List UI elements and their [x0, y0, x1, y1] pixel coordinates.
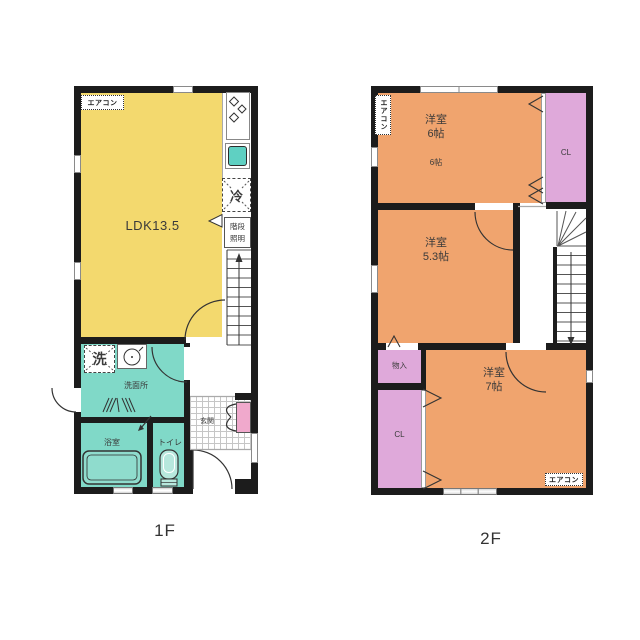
window-1f-left-2 — [74, 262, 81, 280]
wall-1f-bath-north — [74, 417, 188, 423]
wall-2f-closet-south — [546, 202, 593, 209]
room7-name: 洋室 — [449, 366, 539, 380]
washbasin-counter — [117, 344, 147, 369]
floor2-label: 2F — [466, 528, 516, 550]
door-gap-2f-7jo — [506, 343, 546, 350]
closet-bottom-label: CL — [378, 430, 421, 440]
washroom-label: 洗面所 — [120, 381, 152, 391]
kitchen-sink — [228, 146, 247, 166]
fridge-box: 冷 — [222, 178, 251, 212]
room-5-3jo — [378, 210, 513, 343]
window-2f-left-1 — [371, 147, 378, 167]
wall-2f-right — [586, 86, 593, 495]
wall-1f-corner-se — [235, 479, 258, 494]
room-bathroom — [81, 423, 147, 487]
room6-label: 洋室 6帖 — [391, 113, 481, 142]
toilet-label: トイレ — [155, 438, 185, 448]
window-1f-top — [173, 86, 193, 93]
wall-1f-entrance-north — [235, 393, 258, 400]
floor1-label: 1F — [140, 520, 190, 542]
washer-label: 洗 — [93, 349, 107, 369]
stair-light-box: 階段 照明 — [224, 217, 251, 248]
stairs-2f — [557, 211, 586, 341]
room-toilet — [153, 423, 188, 487]
room6-sub-label: 6帖 — [391, 158, 481, 168]
bathroom-label: 浴室 — [98, 438, 126, 448]
door-gap-1f-washroom — [184, 347, 190, 380]
backdoor-arc — [52, 388, 76, 412]
fridge-label: 冷 — [230, 186, 243, 205]
room53-size: 5.3帖 — [391, 250, 481, 264]
stairs-2f-handrail — [553, 247, 557, 345]
ldk-label: LDK13.5 — [120, 218, 185, 235]
aircon-label-1f-text: エアコン — [88, 98, 118, 108]
entrance-door-arc — [193, 450, 232, 489]
closet-top-label: CL — [546, 148, 586, 158]
wall-1f-ldk-south — [74, 337, 186, 344]
storage-label: 物入 — [378, 361, 421, 371]
kitchen-sink-unit — [225, 143, 250, 169]
room6-size: 6帖 — [391, 127, 481, 141]
stairs-1f-up-arrow — [236, 253, 243, 262]
floorplan-canvas: エアコン 冷 階段 照明 洗 LDK13.5 洗面所 浴室 トイレ 玄関 1F — [0, 0, 640, 640]
aircon-label-2f-bottom-text: エアコン — [549, 475, 579, 485]
window-1f-right — [251, 433, 258, 463]
window-2f-right — [586, 370, 593, 383]
aircon-label-1f: エアコン — [81, 95, 124, 110]
wall-2f-storage-south — [371, 383, 426, 390]
aircon-label-2f-top-text: エアコン — [378, 99, 388, 131]
door-gap-2f-53 — [475, 203, 513, 210]
washer-box: 洗 — [84, 345, 115, 373]
partition-7jo-closet — [421, 390, 426, 488]
entrance-label: 玄関 — [196, 417, 218, 426]
stair-light-line1: 階段 — [230, 221, 245, 233]
door-gap-1f-backdoor — [74, 388, 81, 412]
wall-1f-bath-toilet — [147, 423, 153, 487]
wall-2f-53-east — [513, 210, 520, 343]
wall-1f-porch-west — [186, 450, 193, 494]
room-ldk — [81, 93, 222, 337]
wall-2f-storage-east — [421, 350, 426, 383]
door-gap-1f-entrance — [193, 487, 235, 494]
wall-1f-left — [74, 86, 81, 494]
room7-size: 7帖 — [449, 380, 539, 394]
room53-label: 洋室 5.3帖 — [391, 236, 481, 265]
room53-name: 洋室 — [391, 236, 481, 250]
stair-light-line2: 照明 — [230, 233, 245, 245]
room7-label: 洋室 7帖 — [449, 366, 539, 395]
shoe-cabinet — [236, 402, 251, 433]
window-2f-left-2 — [371, 265, 378, 293]
stairs-1f — [227, 250, 251, 345]
window-1f-bath-vent — [113, 487, 133, 494]
room6-name: 洋室 — [391, 113, 481, 127]
aircon-label-2f-bottom: エアコン — [545, 473, 583, 486]
window-2f-top — [420, 86, 498, 93]
room-6jo — [378, 93, 541, 203]
window-1f-toilet-vent — [152, 487, 173, 494]
door-gap-2f-storage — [386, 343, 418, 350]
window-2f-bottom — [443, 488, 497, 495]
aircon-label-2f-top: エアコン — [375, 95, 391, 135]
window-1f-left-1 — [74, 155, 81, 173]
stove — [226, 92, 250, 140]
